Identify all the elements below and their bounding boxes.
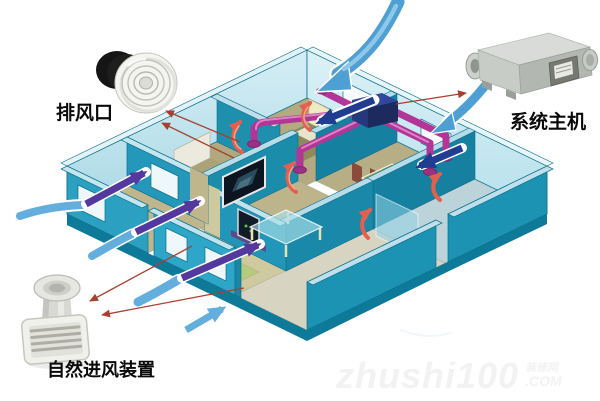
intake-device-photo bbox=[21, 275, 90, 369]
exhaust-vent-label: 排风口 bbox=[56, 98, 113, 125]
system-unit-label: 系统主机 bbox=[510, 107, 586, 134]
house-cutaway-illustration bbox=[0, 0, 600, 401]
intake-device-label: 自然进风装置 bbox=[47, 356, 155, 382]
ventilation-diagram: 排风口 系统主机 自然进风装置 zhushi100 装修网 .COM bbox=[0, 0, 600, 401]
